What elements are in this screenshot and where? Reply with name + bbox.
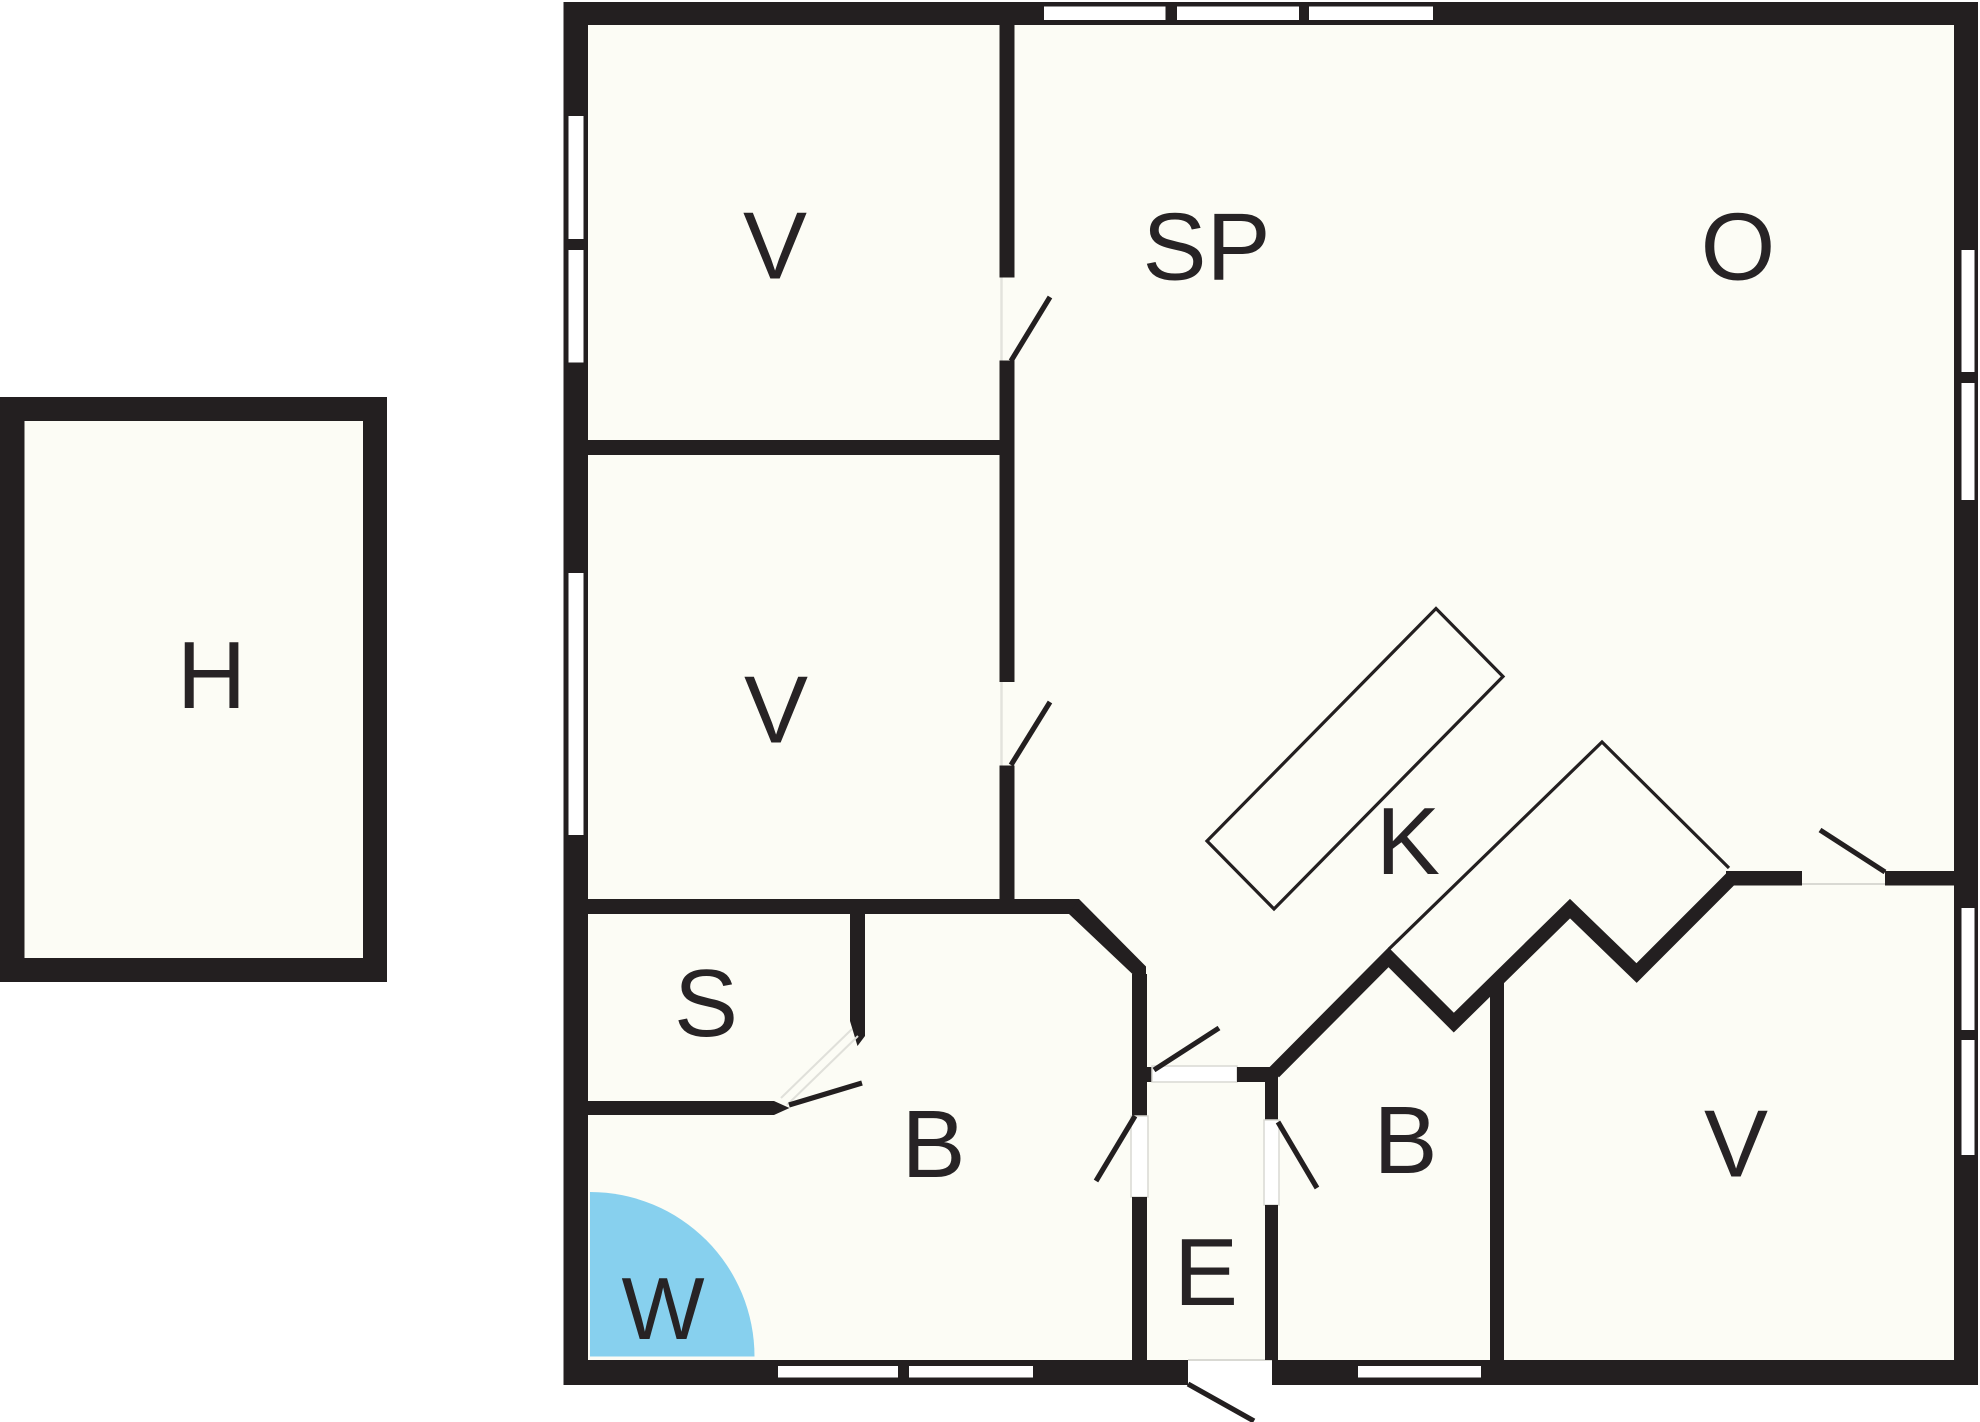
svg-text:V: V (743, 193, 807, 300)
svg-text:K: K (1376, 788, 1440, 895)
svg-text:B: B (901, 1091, 965, 1198)
svg-text:E: E (1174, 1219, 1238, 1326)
svg-text:V: V (1704, 1091, 1768, 1198)
svg-text:O: O (1701, 194, 1776, 301)
svg-text:S: S (674, 950, 738, 1057)
svg-text:SP: SP (1142, 194, 1270, 301)
svg-text:V: V (744, 657, 808, 764)
svg-text:W: W (621, 1259, 704, 1358)
svg-text:B: B (1373, 1087, 1437, 1194)
svg-text:H: H (177, 622, 246, 729)
